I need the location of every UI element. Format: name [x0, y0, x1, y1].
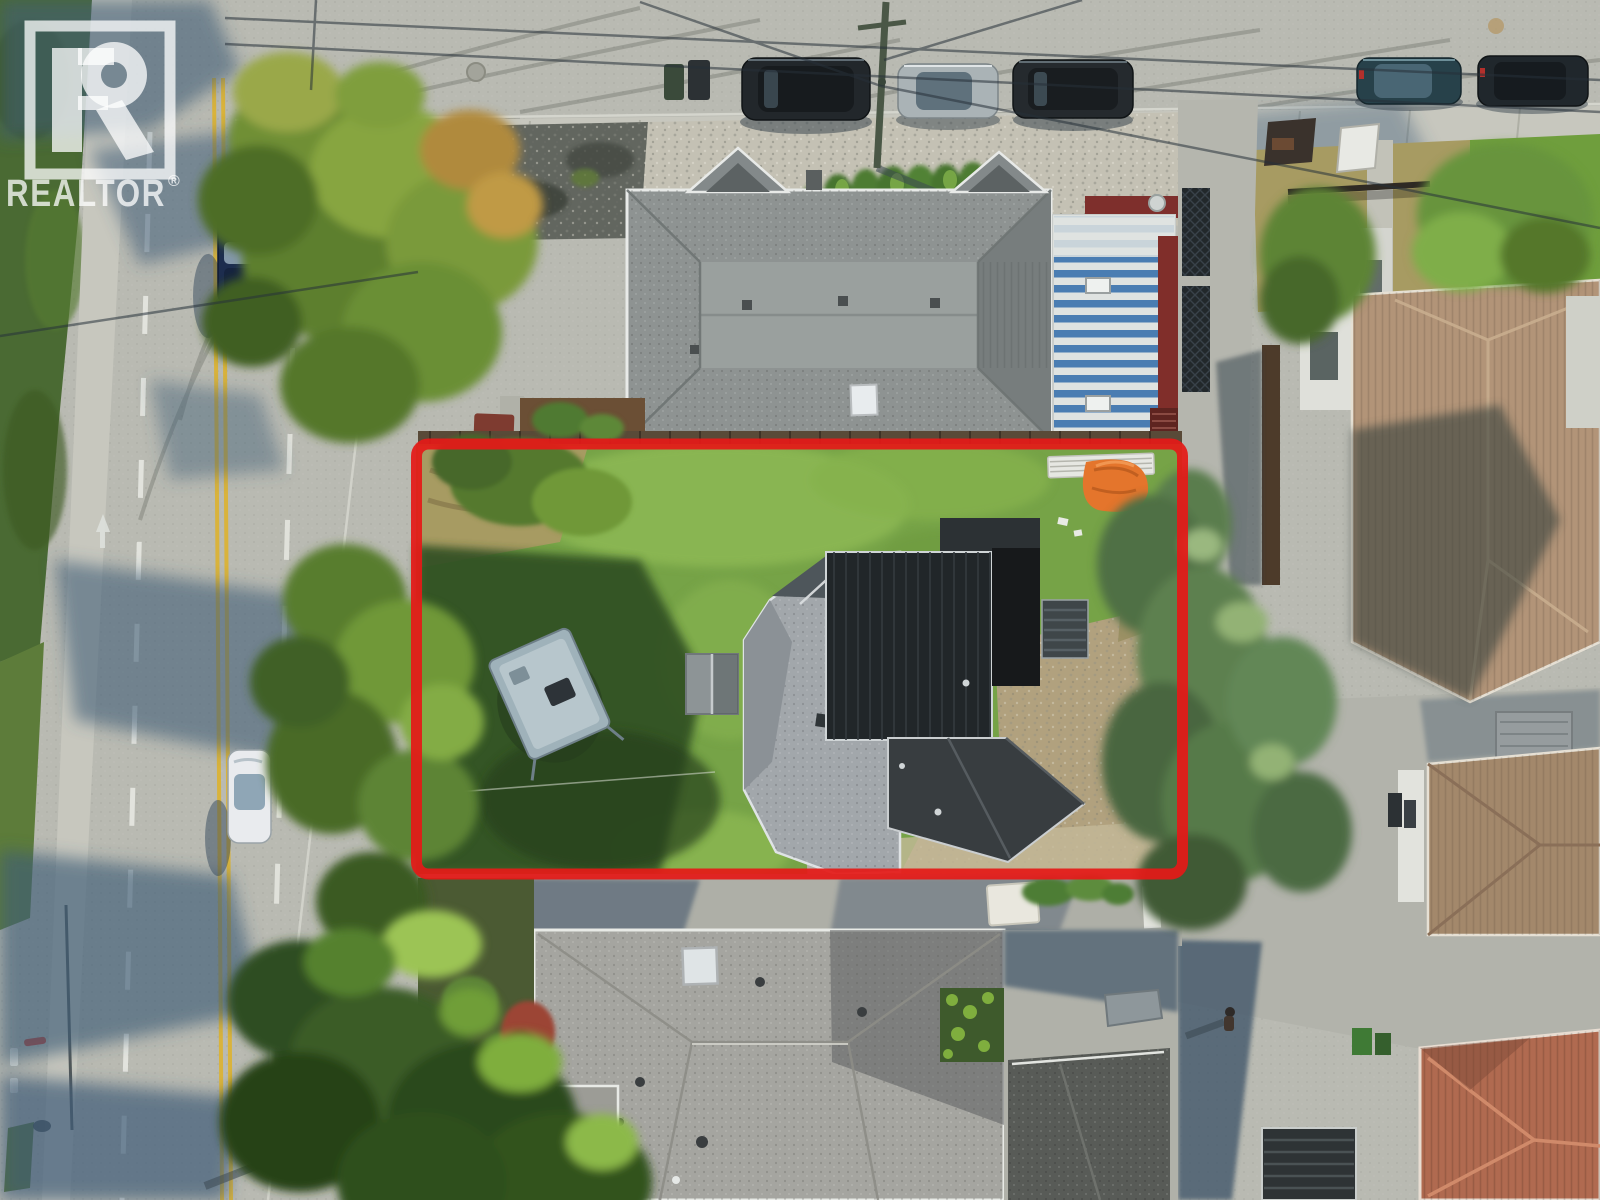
chimney	[806, 170, 822, 190]
rear-deck-stairs	[1042, 600, 1088, 658]
wood-fence	[1262, 345, 1280, 585]
slatted-pergola	[1262, 1128, 1356, 1200]
sign-panel-white	[1337, 124, 1379, 172]
vine-trellis	[940, 988, 1004, 1062]
aerial-photo: REALTOR ®	[0, 0, 1600, 1200]
garbage-bin	[664, 64, 684, 100]
satellite-dish	[1149, 195, 1165, 211]
registered-trademark-symbol: ®	[168, 173, 180, 190]
skylight	[850, 385, 877, 416]
lattice-fence-panel	[1182, 188, 1210, 276]
blue-metal-roof-building	[1053, 195, 1178, 440]
car-sedan-teal	[1357, 58, 1461, 104]
dark-roof-wing	[992, 548, 1040, 686]
house-wall-white	[1398, 770, 1424, 902]
green-garbage-bin	[1352, 1028, 1372, 1055]
manhole-cover	[467, 63, 485, 81]
car-suv-dark-3	[1478, 56, 1588, 106]
car-suv-dark-1	[742, 58, 870, 120]
utility-cover	[1488, 18, 1504, 34]
lattice-fence-panel	[1182, 286, 1210, 392]
car-silver	[898, 64, 998, 118]
garden-shed	[686, 654, 738, 714]
skylight	[682, 947, 717, 984]
realtor-watermark-text: REALTOR	[6, 173, 166, 215]
garage-wall	[1566, 296, 1600, 428]
car-white-left-street	[228, 750, 271, 843]
